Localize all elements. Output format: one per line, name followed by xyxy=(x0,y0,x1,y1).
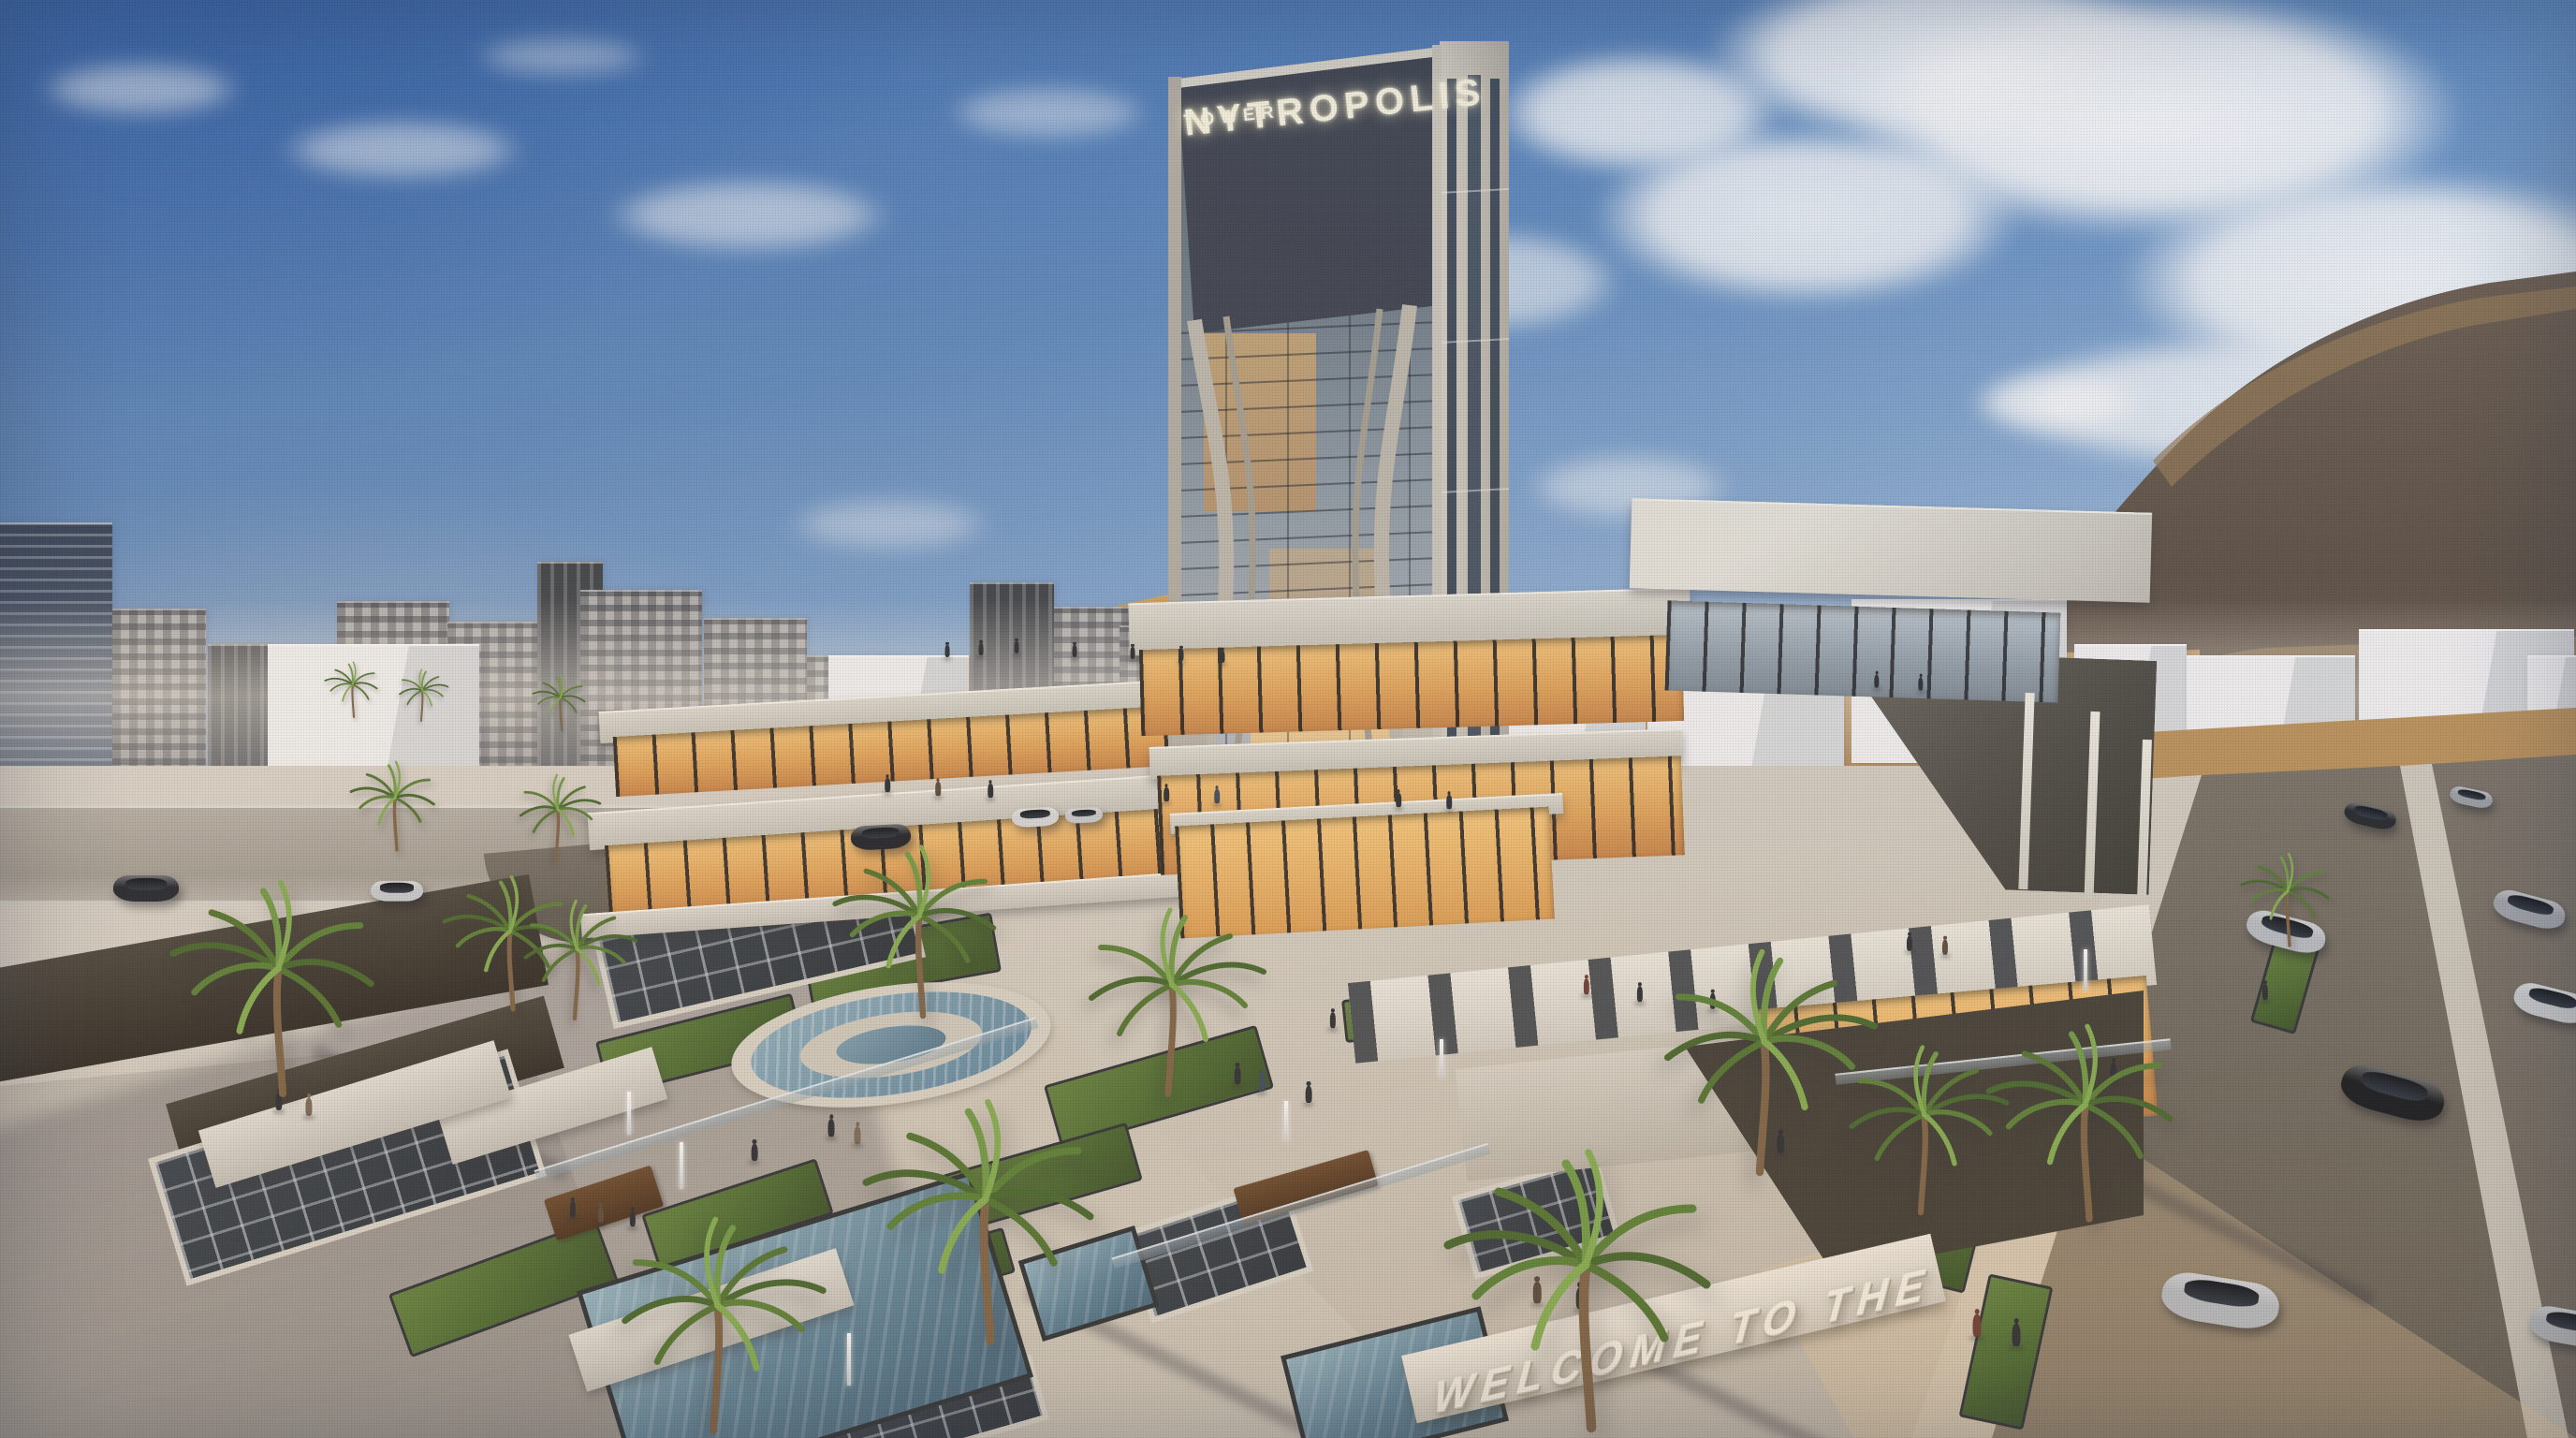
film-grain xyxy=(0,0,2576,1438)
architectural-rendering: NYTROPOLIS TOWER WELCOME TO THE xyxy=(0,0,2576,1438)
